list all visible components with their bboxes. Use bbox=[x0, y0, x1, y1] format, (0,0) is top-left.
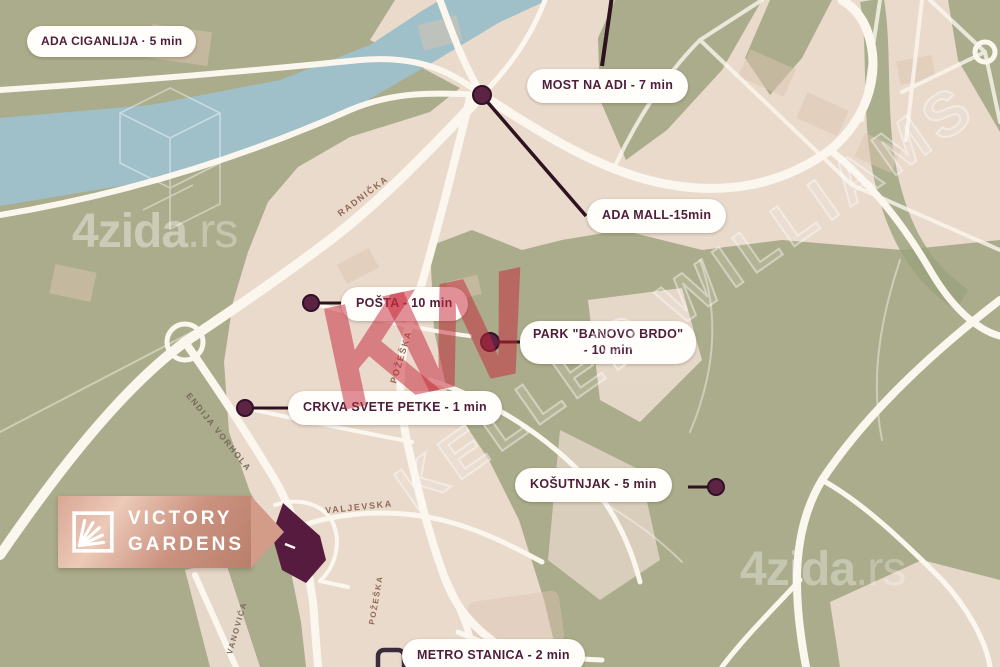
map-image: RADNIČKA POŽEŠKA ENDIJA VORHOLA VALJEVSK… bbox=[0, 0, 1000, 667]
poi-label-most-na-adi: MOST NA ADI - 7 min bbox=[527, 69, 688, 103]
poi-marker-dot bbox=[303, 295, 319, 311]
poi-label-line1: PARK "BANOVO BRDO" bbox=[533, 327, 683, 343]
poi-label-kosutnjak: KOŠUTNJAK - 5 min bbox=[515, 468, 672, 502]
vg-line2: GARDENS bbox=[128, 532, 244, 558]
vg-line1: VICTORY bbox=[128, 506, 244, 532]
poi-label-posta: POŠTA - 10 min bbox=[341, 287, 468, 321]
victory-gardens-fan-icon bbox=[70, 509, 116, 555]
poi-label-line2: - 10 min bbox=[533, 343, 683, 359]
poi-marker-dot bbox=[481, 333, 499, 351]
poi-label-crkva-svete-petke: CRKVA SVETE PETKE - 1 min bbox=[288, 391, 502, 425]
poi-marker-dot bbox=[237, 400, 253, 416]
victory-gardens-logo: VICTORY GARDENS bbox=[58, 496, 252, 568]
poi-label-metro-stanica: METRO STANICA - 2 min bbox=[402, 639, 585, 667]
poi-label-ada-ciganlija: ADA CIGANLIJA · 5 min bbox=[27, 26, 196, 57]
poi-marker-dot bbox=[473, 86, 491, 104]
poi-label-ada-mall: ADA MALL-15min bbox=[587, 199, 726, 233]
poi-label-park-banovo-brdo: PARK "BANOVO BRDO" - 10 min bbox=[520, 321, 696, 364]
poi-marker-dot bbox=[708, 479, 724, 495]
victory-gardens-wordmark: VICTORY GARDENS bbox=[128, 506, 244, 557]
